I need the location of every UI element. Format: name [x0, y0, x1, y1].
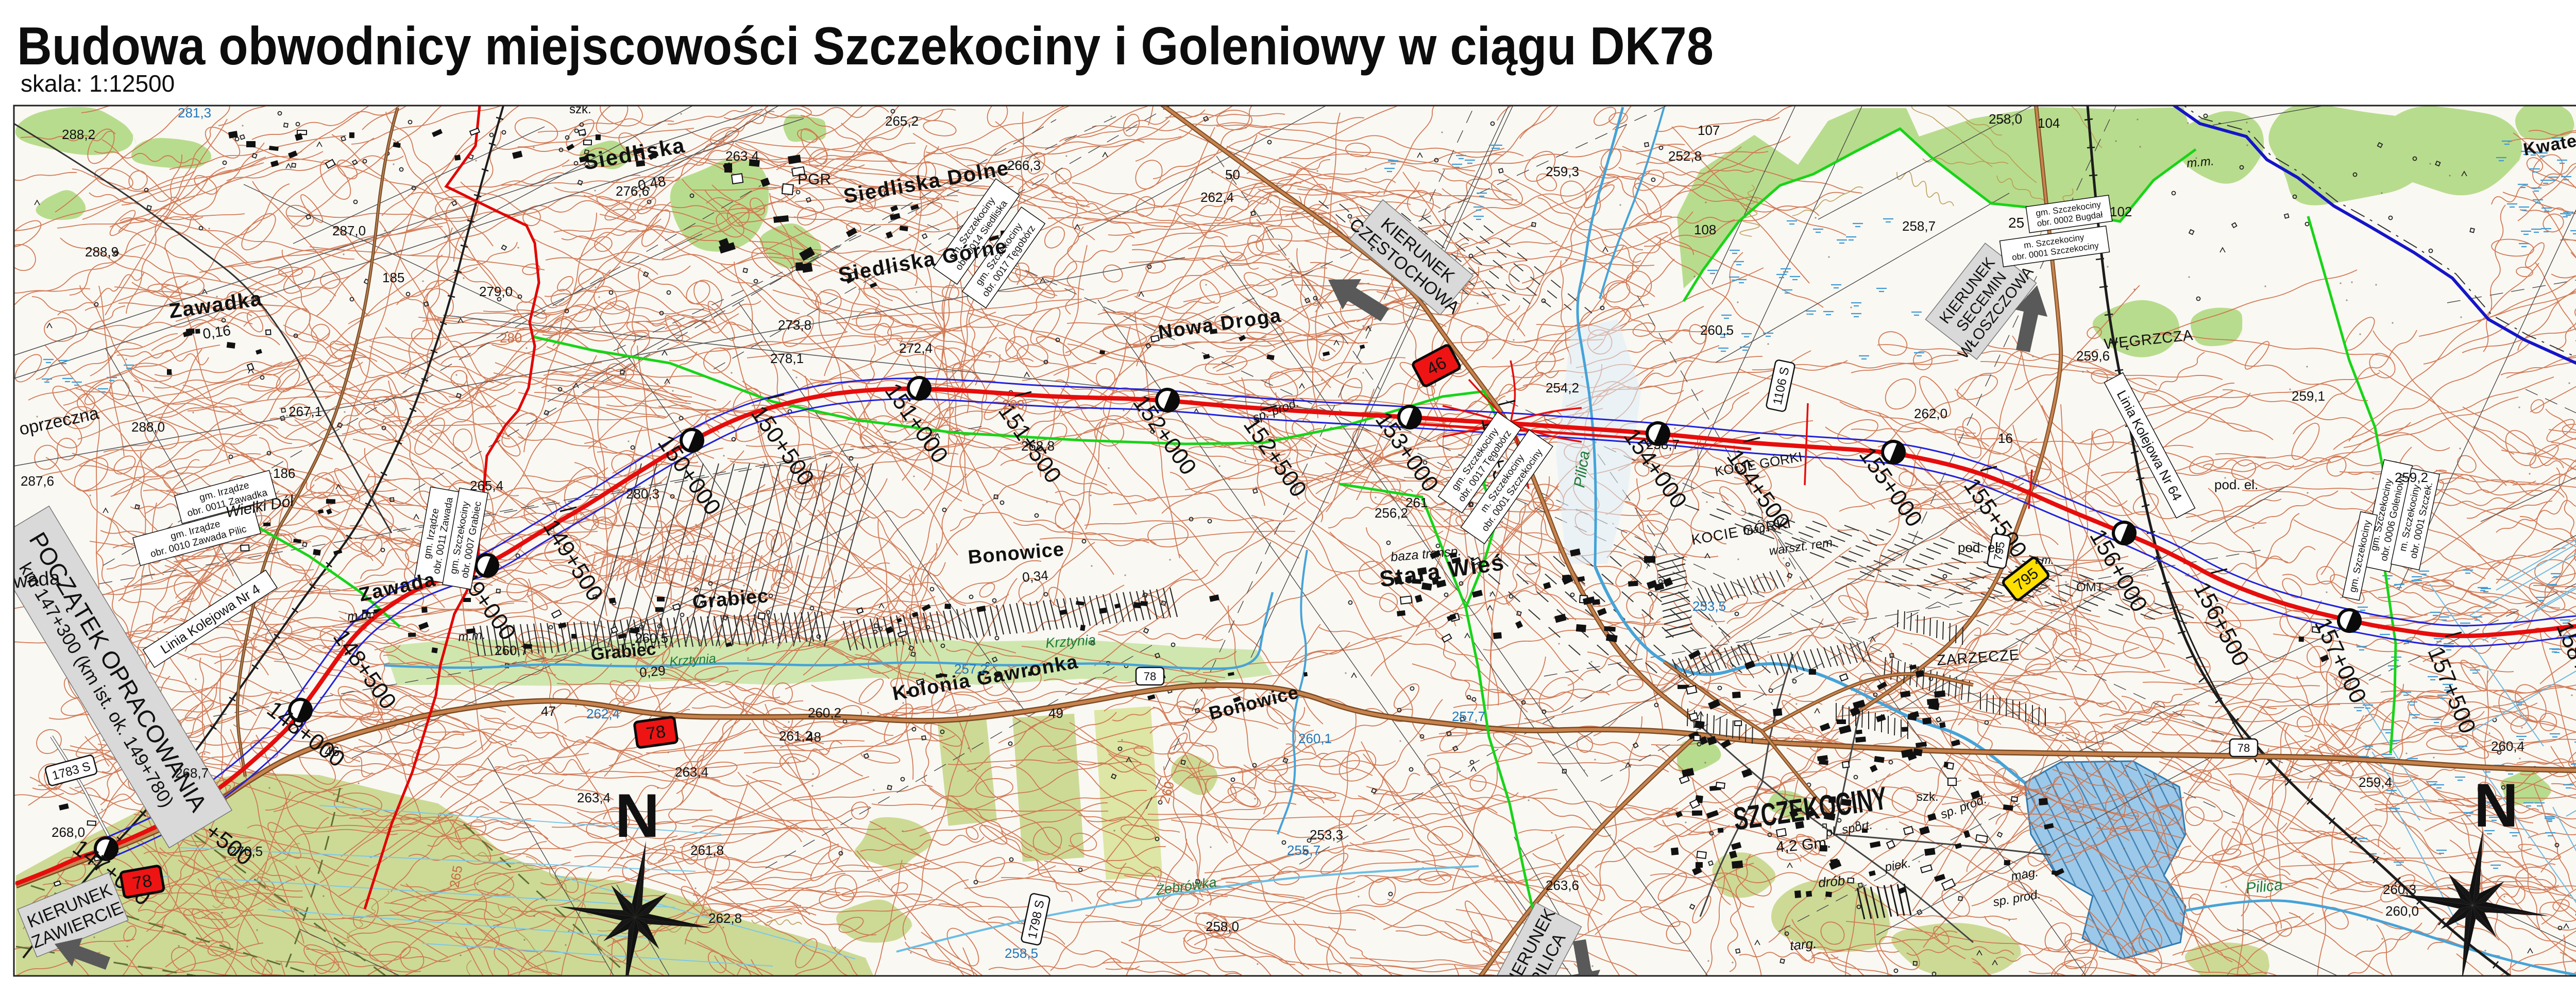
svg-text:260,0: 260,0 — [2385, 903, 2419, 919]
svg-text:78: 78 — [2238, 742, 2250, 754]
svg-text:259,6: 259,6 — [2076, 348, 2110, 364]
svg-text:254,2: 254,2 — [1546, 380, 1579, 396]
svg-text:259,3: 259,3 — [1546, 164, 1579, 179]
svg-text:PGR: PGR — [798, 171, 831, 188]
svg-text:szk.: szk. — [1917, 790, 1939, 804]
svg-text:260,7: 260,7 — [495, 643, 528, 658]
svg-text:258,7: 258,7 — [1646, 437, 1680, 452]
svg-text:268,8: 268,8 — [1021, 438, 1055, 454]
svg-text:t.m.: t.m. — [2035, 554, 2054, 566]
svg-text:288,2: 288,2 — [62, 127, 95, 142]
svg-text:185: 185 — [382, 270, 404, 285]
svg-text:261: 261 — [1405, 495, 1428, 510]
svg-text:262,4: 262,4 — [1200, 190, 1234, 205]
svg-text:268,7: 268,7 — [175, 765, 209, 781]
svg-text:0,29: 0,29 — [639, 663, 666, 680]
svg-text:276,6: 276,6 — [616, 183, 649, 199]
svg-text:261,8: 261,8 — [690, 843, 724, 858]
svg-text:288,9: 288,9 — [85, 244, 118, 260]
svg-text:266,3: 266,3 — [1007, 158, 1041, 173]
svg-text:48: 48 — [806, 729, 821, 745]
svg-text:107: 107 — [1698, 123, 1720, 138]
svg-text:259,4: 259,4 — [2359, 775, 2392, 790]
svg-text:m.m.: m.m. — [347, 607, 375, 624]
svg-text:262,4: 262,4 — [586, 706, 620, 721]
svg-text:186: 186 — [273, 466, 295, 481]
svg-text:257,2: 257,2 — [954, 661, 988, 677]
svg-text:263,4: 263,4 — [725, 148, 759, 164]
svg-text:25: 25 — [2008, 215, 2024, 231]
svg-text:279,0: 279,0 — [479, 284, 513, 299]
svg-text:267,1: 267,1 — [289, 404, 322, 419]
svg-text:253,5: 253,5 — [1692, 598, 1726, 614]
svg-text:260: 260 — [1002, 397, 1024, 412]
svg-text:258,5: 258,5 — [1005, 946, 1038, 961]
svg-text:265,4: 265,4 — [470, 478, 503, 493]
svg-text:258,7: 258,7 — [1902, 218, 1936, 234]
svg-text:262,8: 262,8 — [708, 910, 742, 926]
svg-text:108: 108 — [1694, 222, 1716, 237]
svg-text:78: 78 — [1144, 670, 1156, 683]
svg-text:268,0: 268,0 — [52, 824, 85, 840]
svg-text:263,4: 263,4 — [577, 790, 611, 805]
svg-text:287,6: 287,6 — [21, 473, 54, 489]
svg-text:102: 102 — [2110, 204, 2132, 219]
svg-text:272,4: 272,4 — [899, 340, 933, 356]
svg-text:263,4: 263,4 — [675, 764, 708, 780]
svg-text:m.m.: m.m. — [2186, 154, 2214, 170]
svg-text:104: 104 — [2038, 115, 2060, 131]
svg-text:270,5: 270,5 — [229, 844, 263, 859]
svg-text:258,0: 258,0 — [1206, 919, 1239, 934]
svg-text:m.m.: m.m. — [457, 628, 486, 644]
svg-text:252,8: 252,8 — [1668, 148, 1702, 164]
svg-text:253,3: 253,3 — [1310, 827, 1343, 843]
svg-text:78: 78 — [131, 871, 154, 893]
svg-text:Budowa obwodnicy miejscowości: Budowa obwodnicy miejscowości Szczekocin… — [17, 16, 1714, 76]
svg-text:46: 46 — [325, 744, 340, 759]
svg-text:262,0: 262,0 — [1914, 406, 1947, 421]
svg-text:255,7: 255,7 — [1287, 843, 1320, 858]
svg-text:256,2: 256,2 — [1375, 505, 1408, 521]
svg-text:78: 78 — [645, 722, 667, 744]
svg-text:258,0: 258,0 — [1989, 111, 2022, 127]
svg-text:260,1: 260,1 — [1298, 731, 1332, 746]
svg-text:16: 16 — [1998, 431, 2013, 446]
svg-text:skala: 1:12500: skala: 1:12500 — [21, 70, 175, 97]
svg-text:260,5: 260,5 — [635, 630, 668, 646]
svg-text:pod. el.: pod. el. — [2214, 477, 2258, 492]
svg-text:pod. el.: pod. el. — [1958, 540, 2002, 555]
svg-text:259,2: 259,2 — [2395, 470, 2428, 485]
svg-text:drób: drób — [1818, 873, 1845, 890]
svg-text:targ.: targ. — [1789, 936, 1817, 953]
svg-text:wada: wada — [12, 567, 61, 593]
svg-text:N: N — [615, 781, 660, 850]
svg-text:281,3: 281,3 — [178, 105, 211, 121]
svg-text:259,1: 259,1 — [2292, 388, 2325, 404]
svg-text:260,2: 260,2 — [808, 705, 841, 720]
svg-text:273,8: 273,8 — [778, 317, 811, 333]
svg-text:280: 280 — [500, 330, 522, 346]
svg-text:0,34: 0,34 — [1022, 568, 1049, 585]
svg-text:47: 47 — [541, 703, 556, 719]
svg-text:280,3: 280,3 — [626, 486, 659, 502]
svg-text:OMT: OMT — [2076, 580, 2104, 594]
svg-text:287,0: 287,0 — [332, 223, 366, 238]
svg-text:49: 49 — [1048, 706, 1063, 721]
svg-text:278,1: 278,1 — [770, 351, 804, 366]
svg-text:263,6: 263,6 — [1546, 878, 1579, 893]
svg-text:257,7: 257,7 — [1452, 709, 1485, 724]
svg-text:50: 50 — [1225, 167, 1240, 182]
svg-text:288,0: 288,0 — [131, 419, 165, 435]
svg-text:N: N — [2474, 771, 2519, 840]
svg-text:260,4: 260,4 — [2491, 738, 2524, 754]
svg-text:260,3: 260,3 — [2383, 882, 2416, 897]
svg-text:260,5: 260,5 — [1700, 322, 1734, 338]
svg-text:265,2: 265,2 — [885, 113, 919, 129]
